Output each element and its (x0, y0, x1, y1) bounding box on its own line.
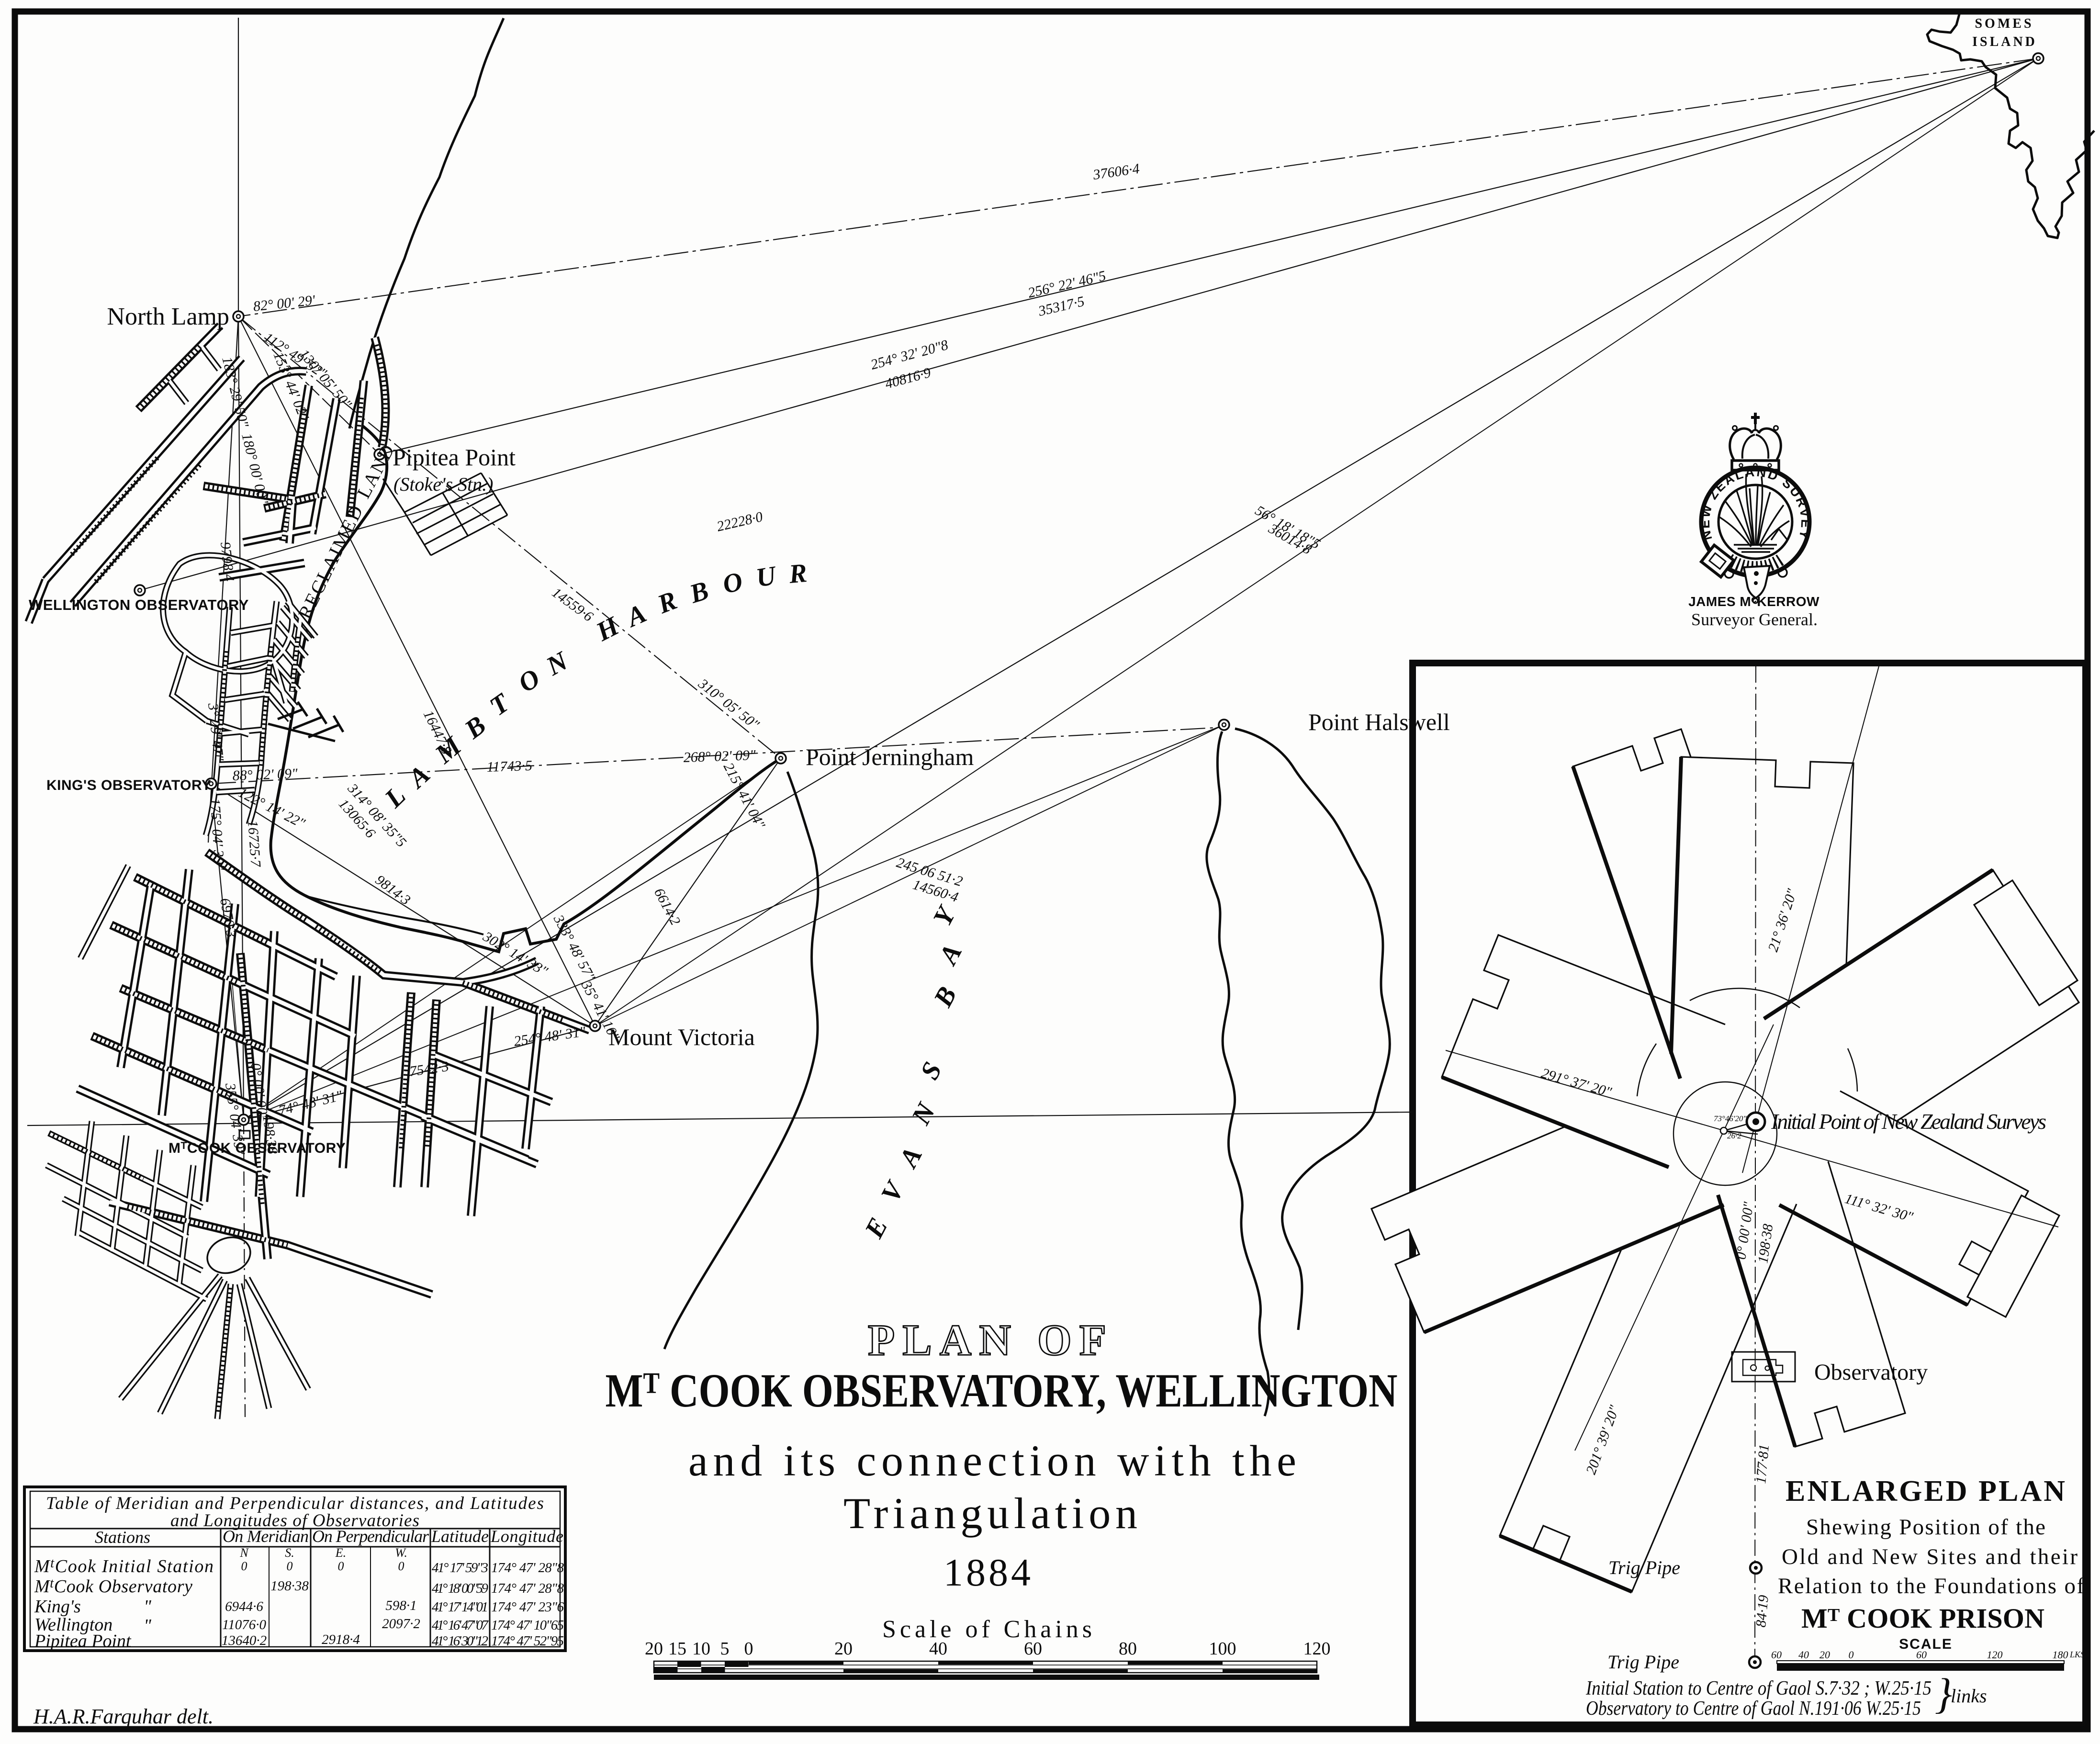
svg-text:Initial Point of New Zealand S: Initial Point of New Zealand Surveys (1771, 1109, 2046, 1134)
svg-text:2918·4: 2918·4 (322, 1632, 360, 1647)
svg-text:0: 0 (398, 1559, 404, 1573)
svg-text:13640·2: 13640·2 (222, 1633, 267, 1648)
svg-text:King's: King's (34, 1597, 81, 1617)
svg-text:100: 100 (1209, 1639, 1236, 1659)
svg-text:Observatory to Centre of Gaol: Observatory to Centre of Gaol N.191·06 W… (1586, 1698, 1921, 1720)
svg-text:MtCook Observatory: MtCook Observatory (34, 1576, 192, 1597)
svg-text:20: 20 (645, 1639, 663, 1659)
svg-text:Trig Pipe: Trig Pipe (1608, 1557, 1680, 1578)
svg-text:15: 15 (668, 1639, 686, 1659)
svg-text:41° 16' 30"12: 41° 16' 30"12 (432, 1633, 488, 1649)
svg-text:Point Jerningham: Point Jerningham (806, 743, 974, 770)
svg-text:S.: S. (285, 1546, 294, 1560)
svg-text:1884: 1884 (943, 1551, 1033, 1594)
svg-text:Latitude: Latitude (431, 1527, 489, 1546)
svg-text:88° 02' 09": 88° 02' 09" (232, 765, 298, 784)
svg-text:41° 17' 59"3: 41° 17' 59"3 (432, 1560, 488, 1575)
svg-text:16725·7: 16725·7 (245, 820, 264, 868)
svg-text:174° 47' 52"95: 174° 47' 52"95 (491, 1633, 564, 1649)
svg-text:R: R (787, 558, 809, 589)
svg-text:268° 02' 09": 268° 02' 09" (683, 747, 756, 765)
svg-text:174° 47' 28"8: 174° 47' 28"8 (491, 1581, 564, 1596)
svg-text:PLAN OF: PLAN OF (868, 1316, 1113, 1364)
svg-text:North Lamp: North Lamp (107, 303, 229, 330)
svg-text:180: 180 (2053, 1649, 2068, 1661)
svg-text:W.: W. (395, 1546, 407, 1560)
svg-text:60: 60 (1916, 1649, 1927, 1661)
svg-text:84·19: 84·19 (1753, 1594, 1772, 1628)
svg-text:41° 16' 47"07: 41° 16' 47"07 (432, 1618, 489, 1633)
svg-text:E.: E. (335, 1546, 346, 1560)
svg-text:41° 17' 14"01: 41° 17' 14"01 (432, 1599, 488, 1615)
svg-text:N: N (239, 1546, 249, 1560)
svg-text:598·1: 598·1 (385, 1598, 416, 1613)
svg-text:": " (144, 1597, 152, 1617)
svg-text:Relation to the Foundations of: Relation to the Foundations of (1778, 1574, 2084, 1598)
svg-text:0: 0 (1849, 1649, 1854, 1661)
svg-text:11743·5: 11743·5 (486, 758, 532, 775)
svg-text:Pipitea Point: Pipitea Point (393, 444, 516, 471)
svg-text:80: 80 (1119, 1639, 1137, 1659)
svg-text:MT COOK OBSERVATORY, WELLINGTO: MT COOK OBSERVATORY, WELLINGTON (606, 1364, 1398, 1417)
svg-text:2097·2: 2097·2 (382, 1616, 420, 1631)
svg-text:Trig Pipe: Trig Pipe (1607, 1651, 1679, 1673)
svg-text:60: 60 (1024, 1639, 1042, 1659)
svg-text:5: 5 (720, 1639, 730, 1659)
svg-text:(Stoke's Stn.): (Stoke's Stn.) (393, 473, 494, 495)
svg-text:41° 18' 00"59: 41° 18' 00"59 (432, 1581, 489, 1596)
svg-text:174° 47' 28"8: 174° 47' 28"8 (491, 1560, 564, 1575)
svg-text:73°46'20": 73°46'20" (1714, 1114, 1747, 1123)
svg-text:ENLARGED PLAN: ENLARGED PLAN (1786, 1475, 2065, 1508)
svg-text:H.A.R.Farquhar delt.: H.A.R.Farquhar delt. (33, 1705, 213, 1728)
svg-text:Initial Station to Centre of G: Initial Station to Centre of Gaol S.7·32… (1585, 1677, 1932, 1699)
svg-text:0: 0 (744, 1639, 753, 1659)
svg-text:0: 0 (287, 1559, 293, 1573)
svg-text:Stations: Stations (95, 1528, 150, 1547)
svg-text:links: links (1951, 1685, 1987, 1707)
svg-text:Longitude: Longitude (490, 1527, 563, 1546)
svg-text:20: 20 (834, 1639, 853, 1659)
svg-text:Triangulation: Triangulation (843, 1489, 1137, 1538)
svg-text:174° 47' 10"65: 174° 47' 10"65 (491, 1618, 564, 1633)
svg-text:10: 10 (692, 1639, 710, 1659)
svg-text:SOMES: SOMES (1975, 16, 2033, 31)
svg-text:Observatory: Observatory (1814, 1360, 1928, 1385)
svg-text:0: 0 (241, 1559, 247, 1573)
svg-text:11076·0: 11076·0 (222, 1617, 267, 1632)
svg-text:On Perpendicular: On Perpendicular (312, 1527, 429, 1546)
svg-text:40: 40 (1798, 1649, 1809, 1661)
svg-text:Surveyor General.: Surveyor General. (1691, 610, 1818, 629)
svg-text:Table of Meridian and Perpendi: Table of Meridian and Perpendicular dist… (46, 1494, 544, 1513)
svg-text:LKS: LKS (2069, 1650, 2085, 1659)
svg-text:174° 47' 23"6: 174° 47' 23"6 (491, 1599, 564, 1615)
svg-text:120: 120 (1987, 1649, 2003, 1661)
svg-text:0: 0 (338, 1559, 344, 1573)
svg-text:6944·6: 6944·6 (225, 1599, 263, 1614)
svg-text:MTCOOK OBSERVATORY: MTCOOK OBSERVATORY (168, 1140, 346, 1156)
svg-text:Shewing Position of the: Shewing Position of the (1806, 1515, 2045, 1540)
svg-text:26·2: 26·2 (1727, 1131, 1741, 1140)
svg-text:Point Halswell: Point Halswell (1308, 709, 1450, 735)
svg-text:60: 60 (1771, 1649, 1782, 1661)
svg-text:": " (144, 1616, 152, 1636)
svg-text:WELLINGTON OBSERVATORY: WELLINGTON OBSERVATORY (29, 596, 249, 613)
svg-text:On Meridian: On Meridian (223, 1527, 309, 1546)
svg-text:Mount Victoria: Mount Victoria (608, 1024, 755, 1050)
svg-text:KING'S OBSERVATORY: KING'S OBSERVATORY (46, 777, 212, 793)
svg-text:20: 20 (1819, 1649, 1830, 1661)
svg-text:}: } (1935, 1670, 1952, 1718)
svg-text:ISLAND: ISLAND (1972, 34, 2037, 49)
svg-text:120: 120 (1303, 1639, 1331, 1659)
svg-text:198·38: 198·38 (270, 1578, 309, 1594)
svg-text:40: 40 (929, 1639, 947, 1659)
svg-text:Pipitea Point: Pipitea Point (34, 1631, 132, 1651)
